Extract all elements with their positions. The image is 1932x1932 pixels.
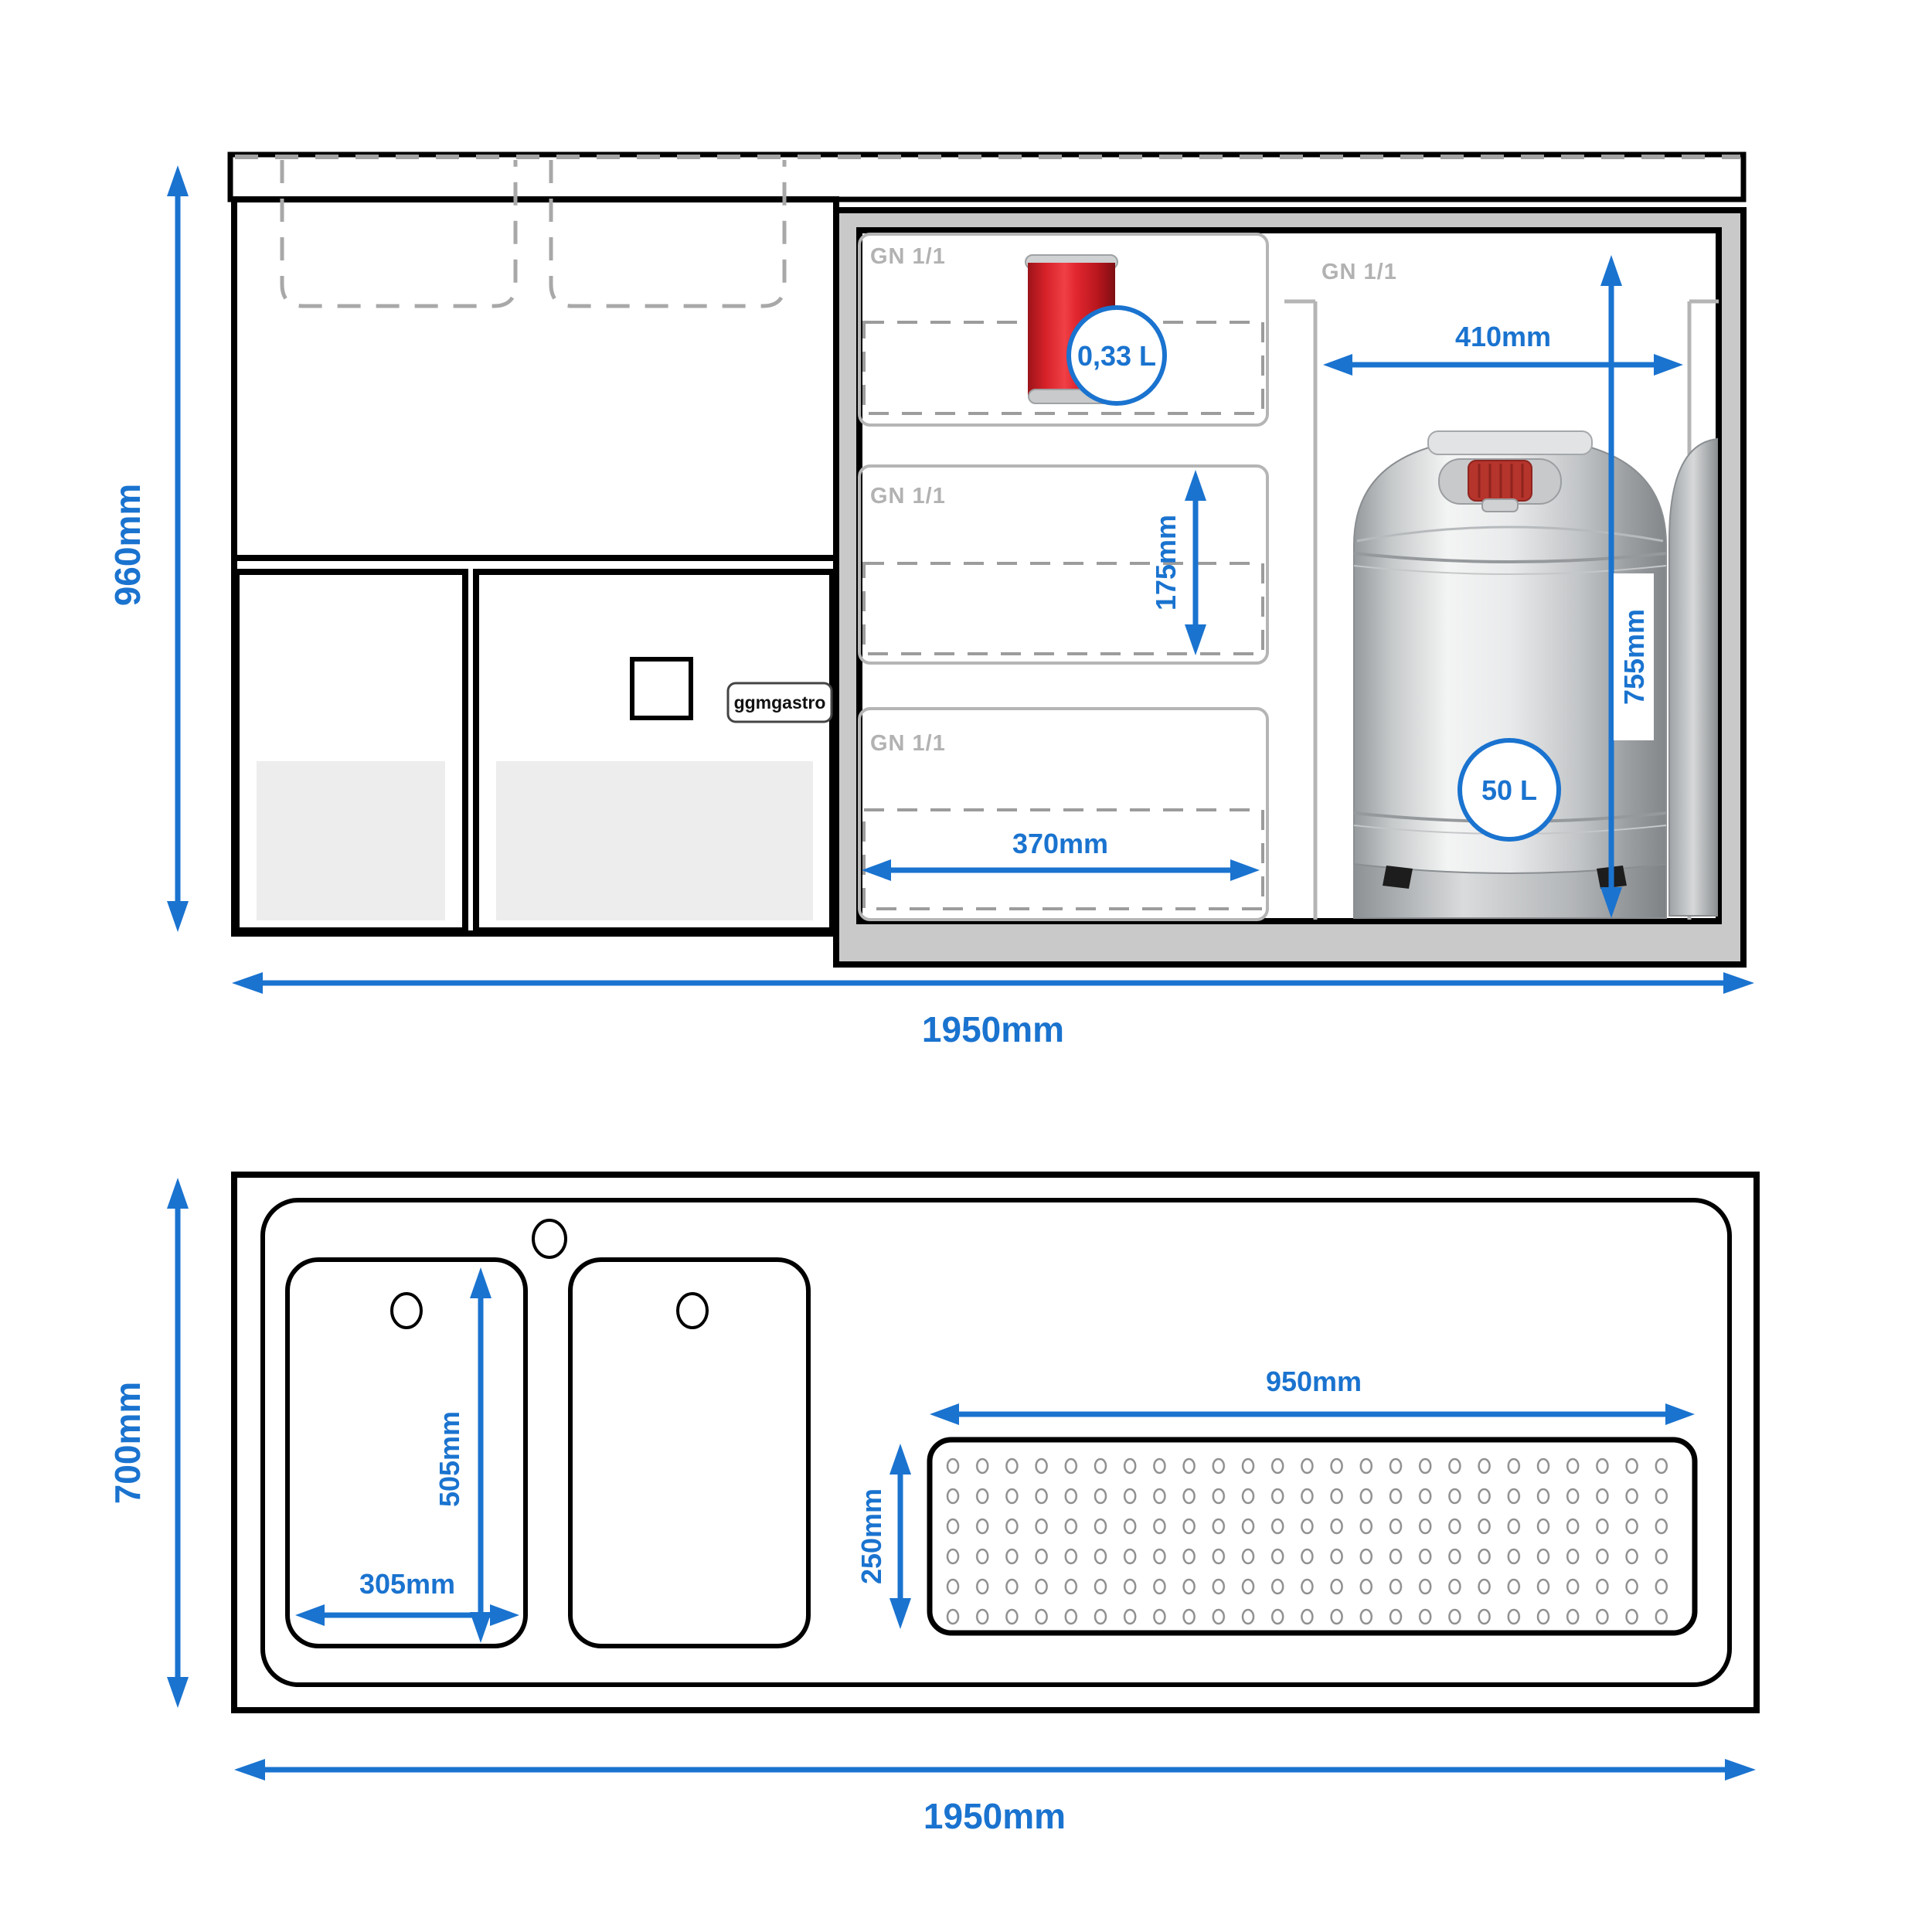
arrowhead-down-icon	[167, 901, 189, 932]
worktop	[230, 155, 1743, 199]
mixer-tap-hole	[533, 1220, 566, 1257]
can-volume-badge: 0,33 L	[1069, 308, 1165, 403]
keg-skirt-notch-left	[1383, 866, 1413, 889]
top-view: 700mm 1950mm 505mm 305mm 950mm	[107, 1175, 1757, 1836]
dimension-label: 250mm	[855, 1488, 887, 1584]
cabinet-door-left	[236, 572, 465, 930]
front-view: ggmgastro GN 1/1 0,33 L	[107, 155, 1754, 1049]
tap-hole	[678, 1294, 707, 1328]
sink-basin-right	[570, 1260, 808, 1646]
technical-drawing: ggmgastro GN 1/1 0,33 L	[0, 0, 1932, 1932]
arrowhead-up-icon	[167, 165, 189, 196]
gn-label: GN 1/1	[870, 731, 946, 756]
dimension-label: 1950mm	[922, 1009, 1064, 1049]
arrowhead-up-icon	[167, 1178, 189, 1209]
worktop-slab	[230, 155, 1743, 199]
dimension-label: 370mm	[1012, 828, 1108, 859]
brand-badge-label: ggmgastro	[734, 692, 826, 713]
dimension-label: 700mm	[107, 1382, 148, 1505]
gn-label: GN 1/1	[870, 244, 946, 269]
arrowhead-right-icon	[1725, 1759, 1756, 1781]
sink-cabinet: ggmgastro	[234, 160, 836, 934]
dimension-overall-width-front: 1950mm	[232, 972, 1754, 1049]
gn-label: GN 1/1	[870, 484, 946, 509]
door-recess	[257, 761, 445, 920]
arrowhead-down-icon	[167, 1677, 189, 1708]
arrowhead-right-icon	[1723, 972, 1754, 994]
tap-hole	[392, 1294, 421, 1328]
cabinet-door-right: ggmgastro	[476, 572, 832, 930]
dimension-label: 755mm	[1618, 609, 1650, 705]
beer-keg-rear	[1669, 439, 1717, 916]
dimension-overall-height: 960mm	[107, 165, 189, 932]
dimension-label: 305mm	[359, 1568, 455, 1600]
dimension-label: 410mm	[1455, 321, 1551, 352]
dimension-label: 1950mm	[923, 1796, 1066, 1836]
keg-neck-rim	[1428, 431, 1592, 454]
keg-volume-badge: 50 L	[1460, 740, 1559, 839]
cabinet-upper-compartment	[234, 199, 836, 558]
arrowhead-left-icon	[232, 972, 263, 994]
badge-value: 0,33 L	[1077, 340, 1156, 372]
brand-badge: ggmgastro	[728, 683, 832, 722]
arrowhead-left-icon	[234, 1759, 265, 1781]
dimension-label: 175mm	[1150, 515, 1182, 611]
dimension-overall-depth: 700mm	[107, 1178, 189, 1708]
dimension-label: 505mm	[434, 1411, 465, 1507]
gn-label: GN 1/1	[1321, 260, 1397, 284]
door-lock-plate	[632, 659, 691, 718]
keg-cap-flange	[1482, 499, 1518, 512]
dimension-label: 950mm	[1266, 1366, 1362, 1397]
dimension-overall-width-plan: 1950mm	[234, 1759, 1756, 1836]
fridge-section: GN 1/1 0,33 L GN 1/1 GN	[836, 210, 1743, 964]
drainer-area	[930, 1440, 1695, 1633]
dimension-label: 960mm	[107, 484, 148, 607]
drainer-perforations	[944, 1456, 1683, 1632]
badge-value: 50 L	[1481, 774, 1537, 806]
door-recess	[496, 761, 813, 920]
